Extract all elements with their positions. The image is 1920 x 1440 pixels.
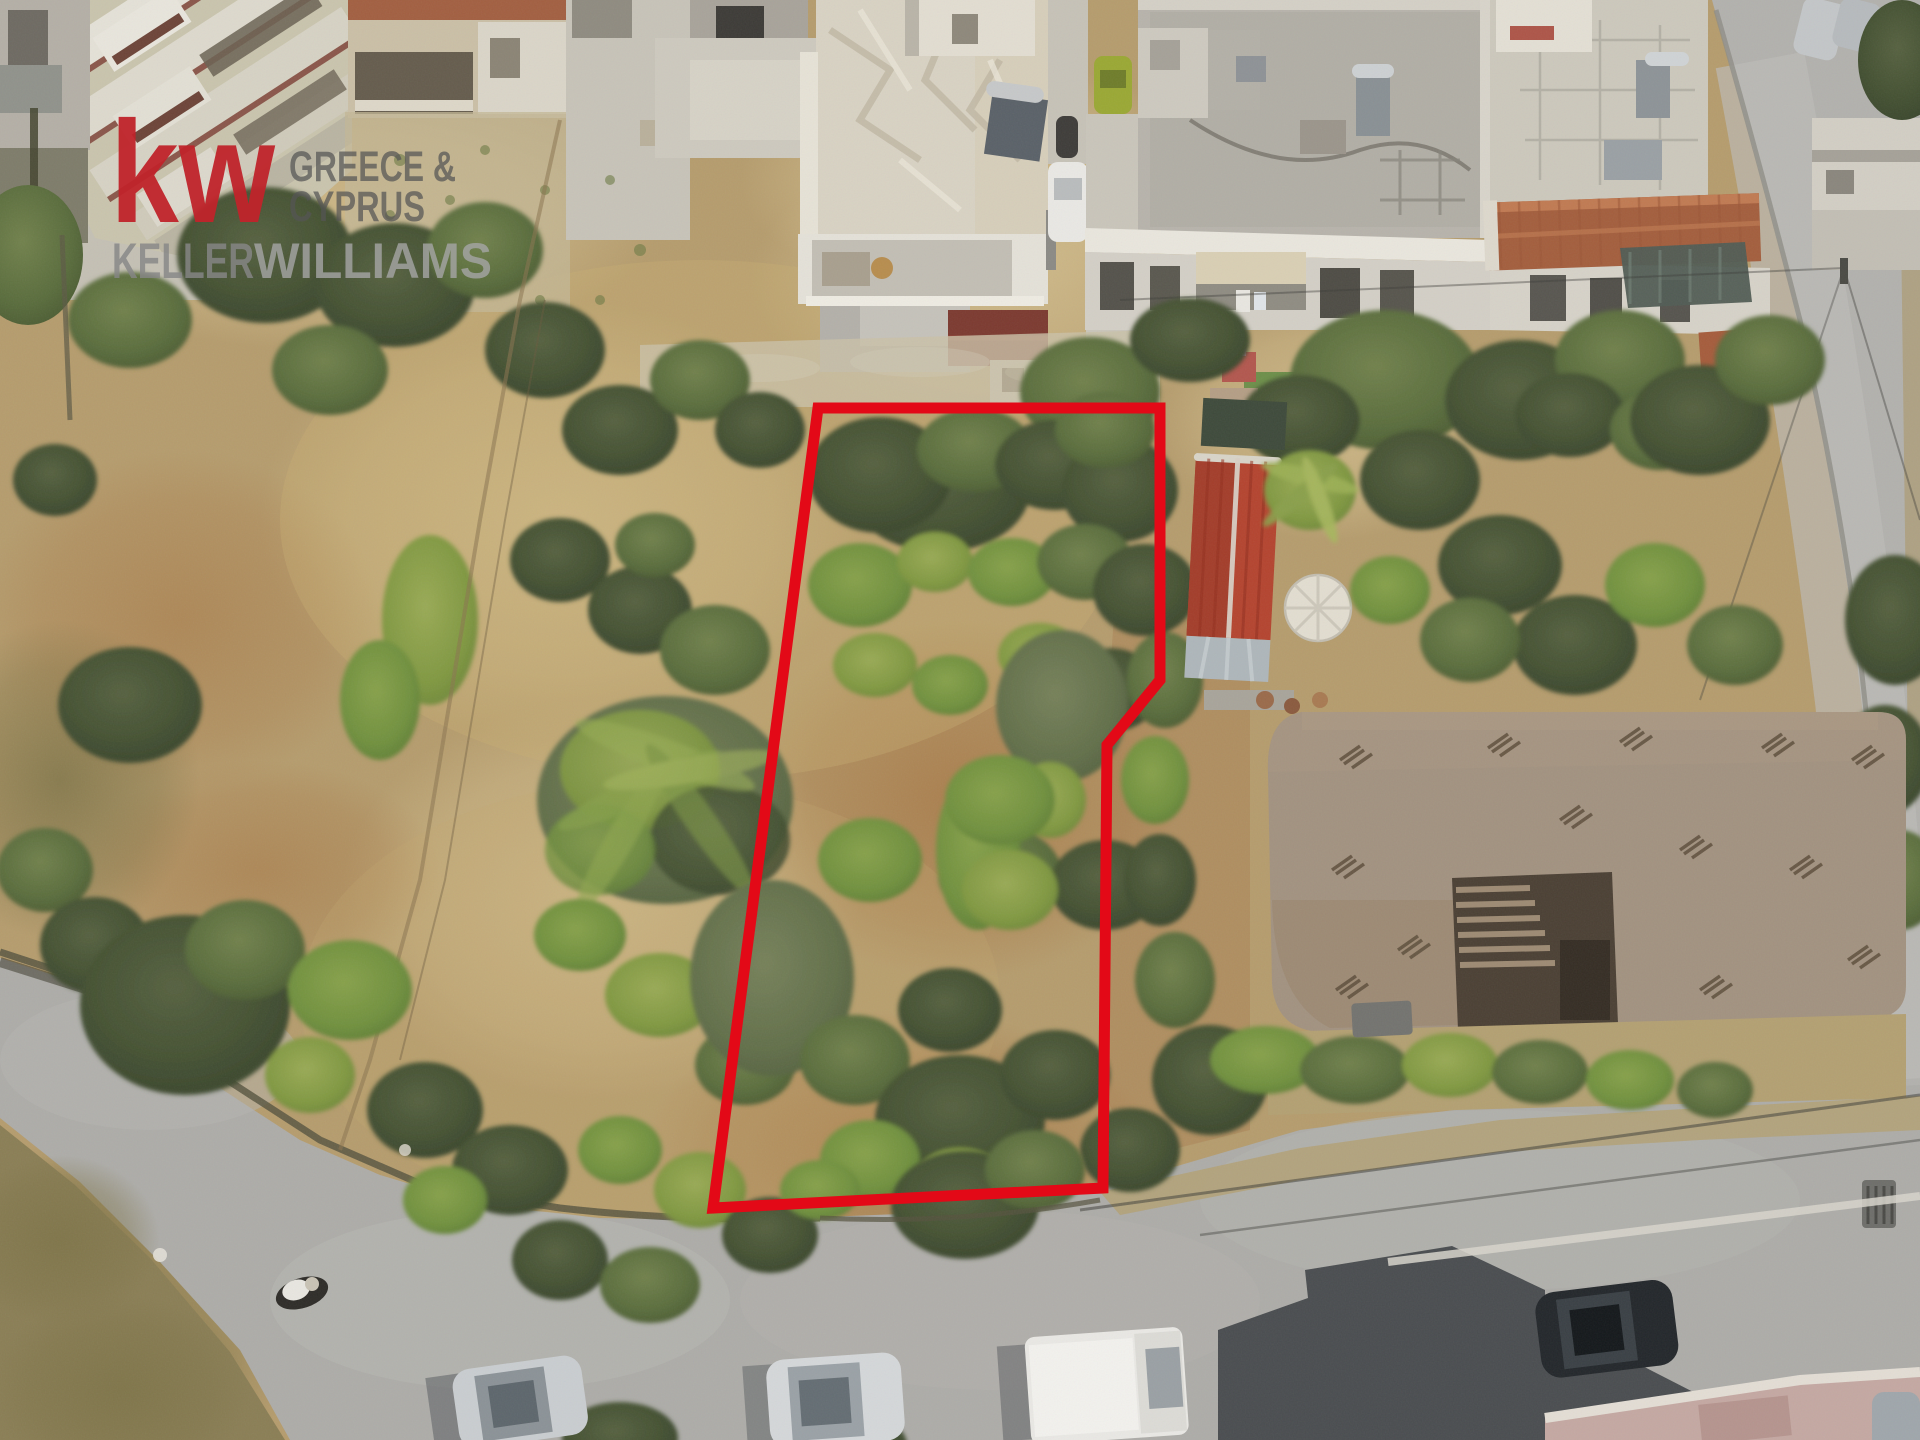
svg-text:WILLIAMS: WILLIAMS [254,233,492,289]
svg-text:CYPRUS: CYPRUS [289,183,425,231]
svg-text:kw: kw [110,91,276,253]
svg-text:KELLER: KELLER [112,233,254,289]
